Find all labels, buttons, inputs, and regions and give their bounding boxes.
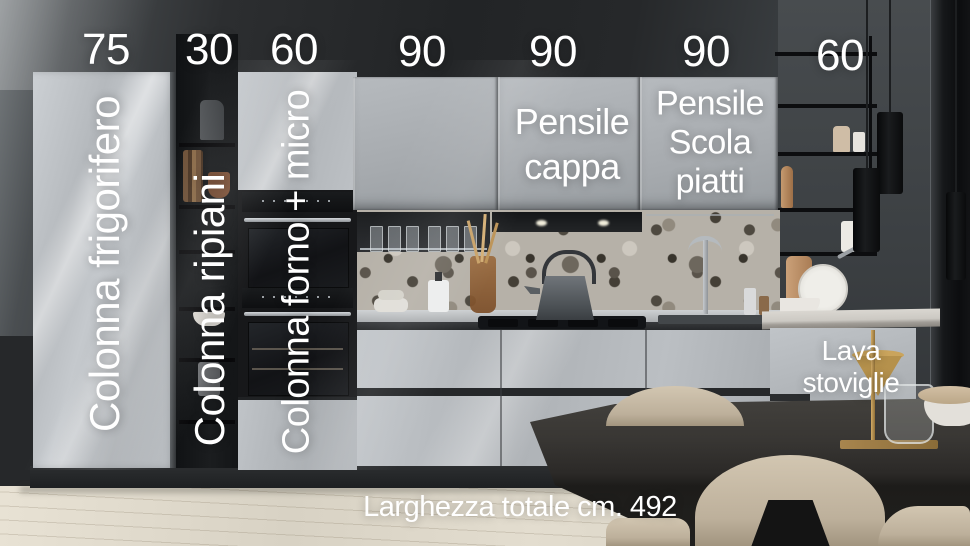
wall-shelf: [775, 104, 877, 108]
dimension-wall-cab-3: 90: [682, 26, 730, 78]
dimension-shelves: 30: [185, 24, 233, 76]
burner-grate: [488, 319, 518, 327]
shelf-canister: [833, 126, 850, 152]
utensil-rail: [646, 214, 774, 216]
pepper-mill: [781, 166, 793, 208]
column-shelf: [179, 143, 235, 147]
total-width-caption: Larghezza totale cm. 492: [363, 490, 677, 524]
shelf-jar: [853, 132, 865, 152]
shelf-upright: [869, 36, 872, 176]
pendant-cable: [866, 0, 868, 169]
drinking-glass: [370, 226, 383, 252]
pepper-mill: [797, 175, 808, 208]
wall-cabinet: [353, 77, 498, 210]
dimension-dishwasher: 60: [816, 30, 864, 82]
wall-shelf: [775, 152, 877, 156]
drinking-glass: [388, 226, 401, 252]
hood-light: [598, 220, 609, 226]
extractor-hood: [492, 212, 642, 232]
drawer-seam: [500, 330, 502, 466]
label-fridge-column: Colonna frigorifero: [81, 172, 129, 432]
dimension-wall-cab-1: 90: [398, 26, 446, 78]
island-worktop: [762, 308, 940, 329]
drinking-glass: [446, 226, 459, 252]
bottle-pump: [435, 272, 442, 281]
dimension-fridge: 75: [82, 24, 130, 76]
round-box: [374, 298, 408, 312]
faucet: [703, 240, 708, 314]
jug-decor: [200, 100, 224, 140]
burner-grate: [528, 319, 558, 327]
drinking-glass: [428, 226, 441, 252]
amber-vase: [470, 256, 496, 313]
pendant-cable: [955, 0, 957, 193]
pendant-light: [946, 192, 966, 280]
label-dishwasher: Lava stoviglie: [785, 335, 917, 399]
label-oven-column: Colonna forno + micro: [275, 90, 320, 454]
pendant-light: [853, 168, 880, 252]
soap-bottle: [744, 288, 756, 315]
label-dishrack-cabinet: Pensile Scola piatti: [644, 84, 776, 201]
kitchen-annotated-photo: 75 30 60 90 90 90 60 Colonna frigorifero…: [0, 0, 970, 546]
label-hood-cabinet: Pensile cappa: [487, 99, 657, 189]
burner-grate: [608, 319, 638, 327]
hood-light: [536, 220, 547, 226]
label-shelves-column: Colonna ripiani: [185, 174, 235, 447]
dimension-wall-cab-2: 90: [529, 26, 577, 78]
soap-bottle: [428, 280, 449, 312]
kettle: [536, 276, 594, 320]
drinking-glass: [406, 226, 419, 252]
sink: [658, 315, 766, 324]
pendant-light: [877, 112, 903, 194]
pendant-cable: [889, 0, 891, 113]
dimension-oven: 60: [270, 24, 318, 76]
burner-grate: [568, 319, 598, 327]
round-box: [378, 290, 404, 300]
